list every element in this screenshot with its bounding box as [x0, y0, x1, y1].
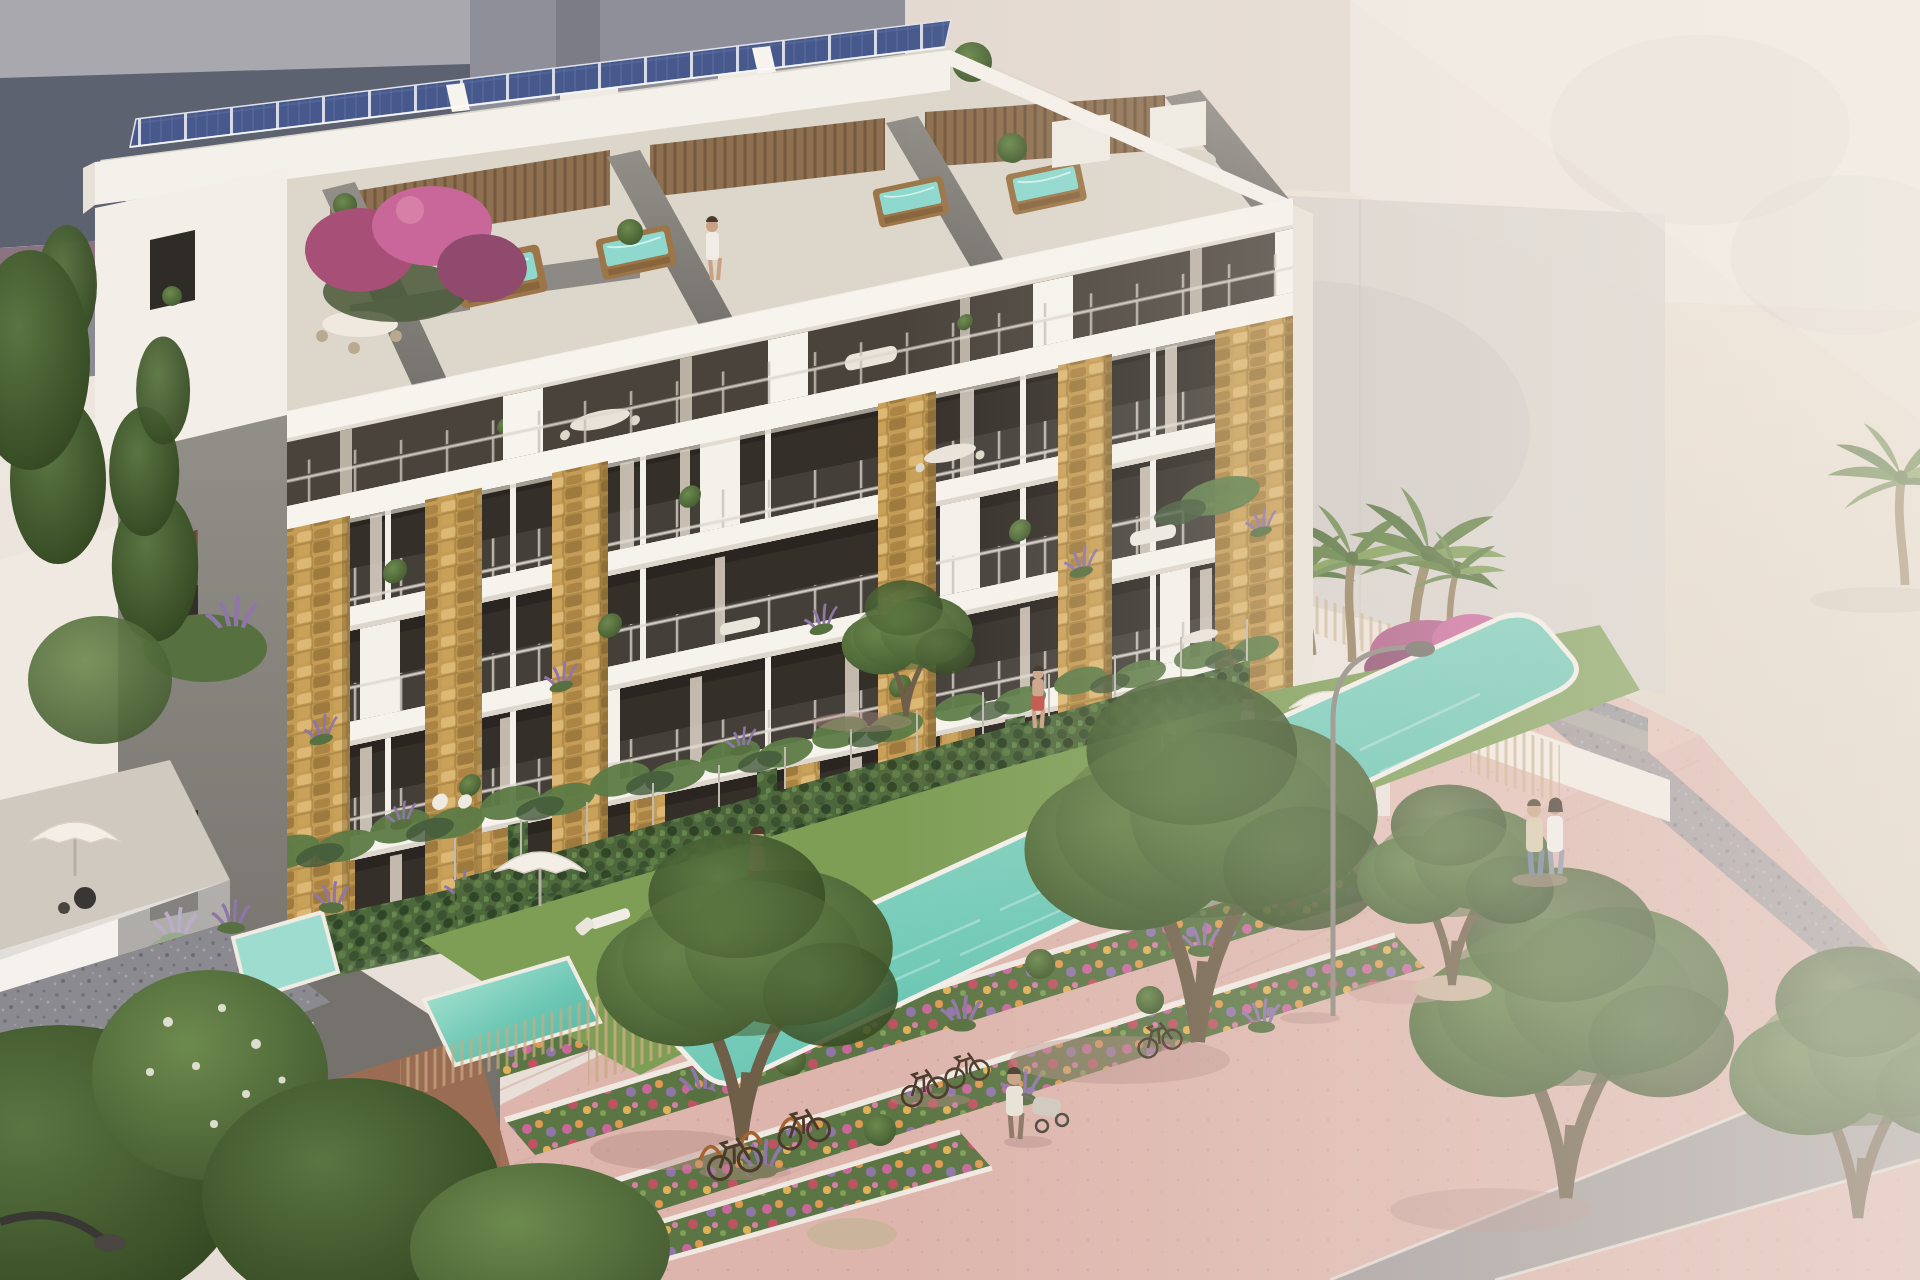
- tree-shadow: [812, 712, 912, 732]
- rendering-canvas: [0, 0, 1920, 1280]
- bistro-table: [74, 887, 96, 909]
- terrace-plant: [617, 219, 643, 245]
- foreground-lamp-head: [94, 1234, 126, 1252]
- tree-pit: [807, 1218, 897, 1250]
- tower-white-top: [95, 168, 287, 462]
- fascia-end-cap: [83, 162, 95, 214]
- scene-svg: [0, 0, 1920, 1280]
- olive-tree: [28, 616, 172, 744]
- fern-tuft: [864, 1114, 896, 1146]
